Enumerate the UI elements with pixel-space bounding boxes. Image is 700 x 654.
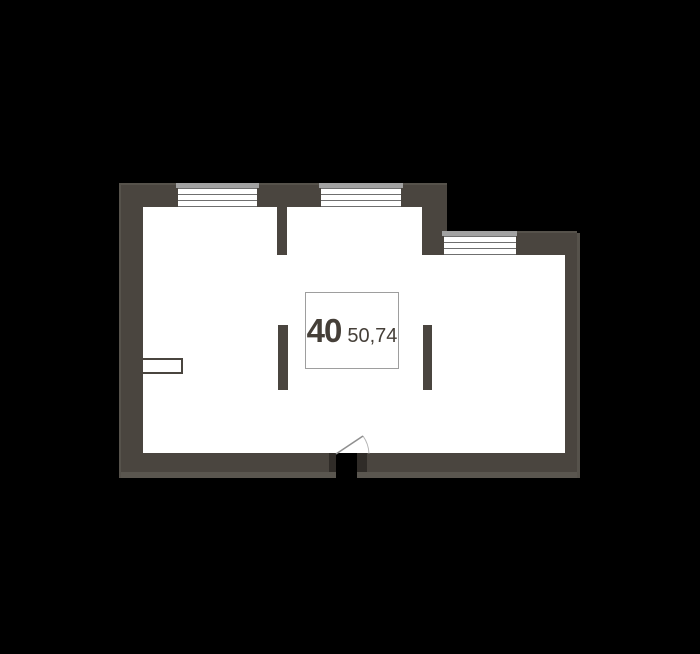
wall-outer-edge-right (577, 233, 580, 478)
ventilation-shaft (141, 358, 183, 374)
unit-label: 40 50,74 (307, 314, 398, 347)
floor-plan-canvas: 40 50,74 (0, 0, 700, 654)
wall-stub-left (278, 325, 288, 390)
interior-partition-top (277, 207, 287, 255)
unit-number: 40 (307, 314, 342, 347)
wall-stub-right (423, 325, 432, 390)
window-2 (321, 188, 401, 207)
window-3 (444, 236, 516, 255)
door-swing-arc (363, 436, 369, 454)
window-1 (178, 188, 257, 207)
door-leaf-line (336, 436, 363, 454)
unit-area: 50,74 (347, 326, 397, 346)
unit-label-box: 40 50,74 (305, 292, 399, 369)
door-swing-icon (320, 425, 380, 465)
